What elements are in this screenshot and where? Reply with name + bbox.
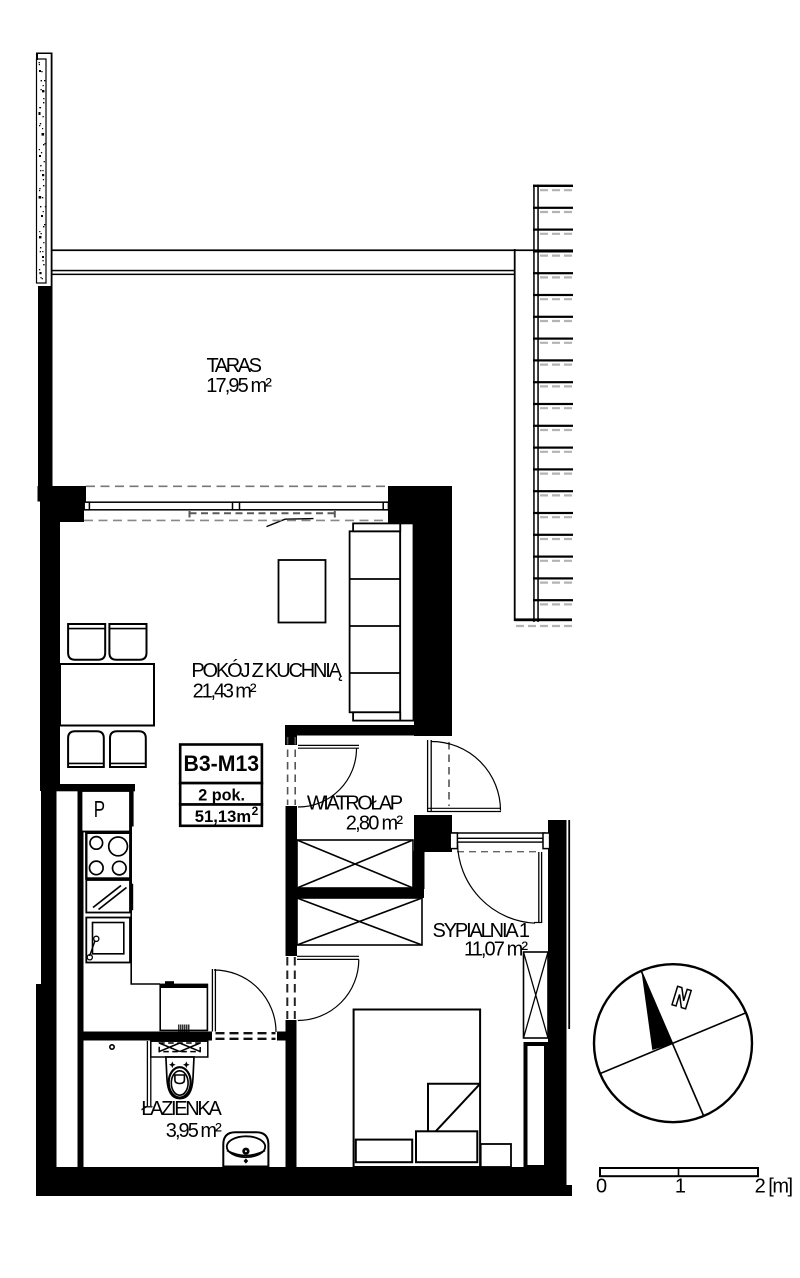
svg-text:ŁAZIENKA: ŁAZIENKA (141, 1098, 222, 1120)
svg-text:2: 2 (252, 804, 259, 818)
svg-text:P: P (94, 796, 105, 822)
svg-text:1: 1 (675, 1176, 686, 1198)
svg-text:2 pok.: 2 pok. (198, 787, 245, 805)
svg-text:B3-M13: B3-M13 (184, 751, 260, 776)
svg-text:TARAS: TARAS (207, 355, 263, 377)
svg-text:WIATROŁAP: WIATROŁAP (307, 793, 403, 815)
svg-text:51,13m: 51,13m (195, 808, 251, 826)
svg-text:POKÓJ Z KUCHNIĄ: POKÓJ Z KUCHNIĄ (191, 659, 342, 682)
svg-text:2 [m]: 2 [m] (755, 1176, 794, 1198)
svg-text:3,95 m²: 3,95 m² (166, 1120, 222, 1142)
svg-text:17,95 m²: 17,95 m² (206, 375, 272, 397)
svg-text:2,80 m²: 2,80 m² (346, 813, 404, 835)
svg-text:21,43 m²: 21,43 m² (193, 681, 257, 703)
svg-text:11,07 m²: 11,07 m² (464, 939, 528, 961)
svg-text:0: 0 (596, 1176, 607, 1198)
